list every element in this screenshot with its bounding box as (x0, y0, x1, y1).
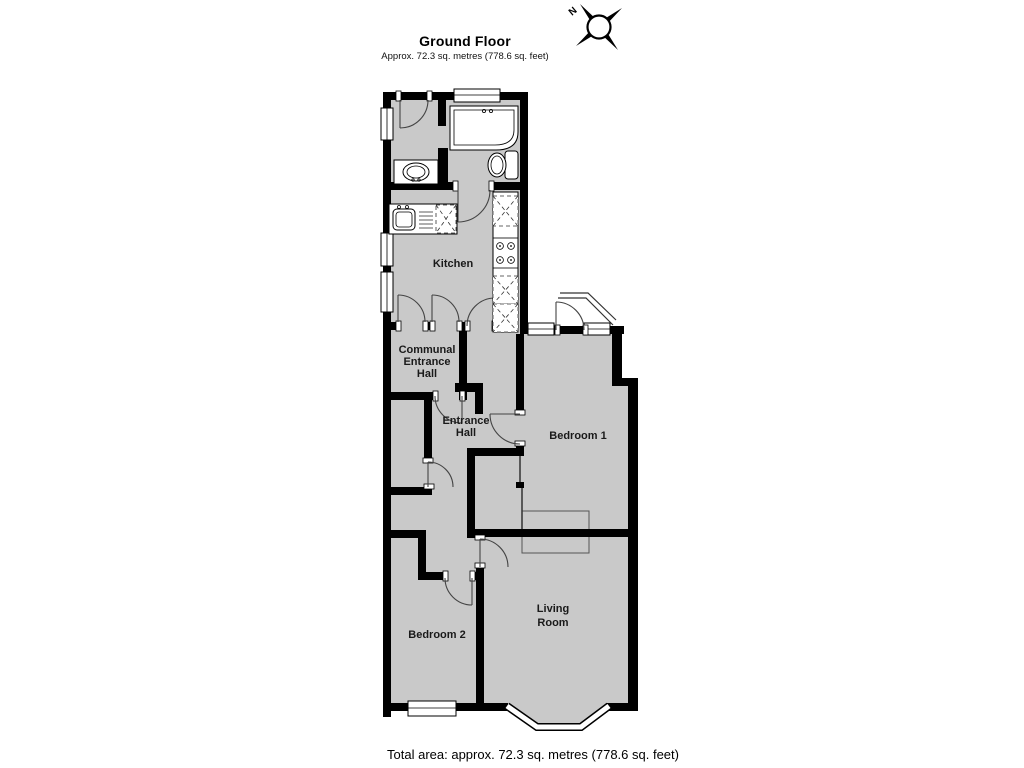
floor-plan: N (0, 0, 1024, 768)
window (381, 272, 393, 312)
room-label-entrance-2: Hall (456, 427, 476, 439)
room-label-communal-1: Communal (399, 344, 456, 356)
room-label-living-2: Room (537, 617, 568, 629)
window (528, 323, 554, 335)
room-label-living-1: Living (537, 603, 569, 615)
room-label-kitchen: Kitchen (433, 258, 474, 270)
window (381, 108, 393, 140)
bathroom-sink (394, 160, 438, 184)
window (381, 233, 393, 266)
exterior-step-lines (558, 293, 616, 325)
room-label-bedroom1: Bedroom 1 (549, 430, 606, 442)
window (408, 701, 456, 716)
floorplan-page: Ground Floor Approx. 72.3 sq. metres (77… (0, 0, 1024, 768)
bathtub (450, 106, 518, 150)
kitchen-unit (493, 196, 518, 226)
kitchen-unit (436, 205, 456, 233)
kitchen-counter (493, 192, 518, 332)
page-subtitle: Approx. 72.3 sq. metres (778.6 sq. feet) (300, 51, 630, 62)
kitchen-unit (493, 304, 518, 332)
page-title: Ground Floor (300, 33, 630, 49)
total-area-text: Total area: approx. 72.3 sq. metres (778… (333, 747, 733, 762)
room-label-bedroom2: Bedroom 2 (408, 629, 465, 641)
room-label-communal-3: Hall (417, 368, 437, 380)
window (454, 89, 500, 102)
kitchen-unit (493, 276, 518, 304)
kitchen-sink-unit (389, 204, 457, 234)
compass-north-label: N (567, 5, 580, 18)
room-label-entrance-1: Entrance (442, 415, 489, 427)
room-label-communal-2: Entrance (403, 356, 450, 368)
